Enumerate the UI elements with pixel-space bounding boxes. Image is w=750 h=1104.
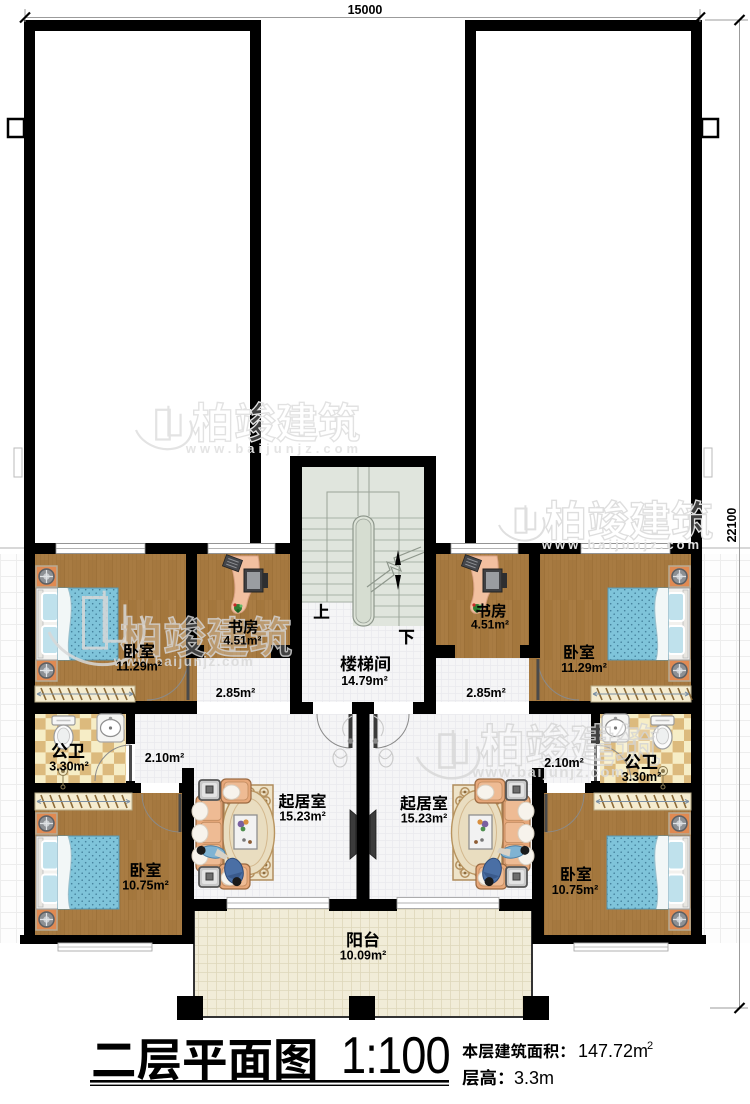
svg-text:2.10m²: 2.10m² bbox=[544, 756, 584, 770]
svg-text:15.23m²: 15.23m² bbox=[401, 812, 448, 826]
svg-text:3.30m²: 3.30m² bbox=[622, 770, 662, 784]
svg-text:11.29m²: 11.29m² bbox=[116, 660, 162, 674]
svg-text:www.baijunjz.com: www.baijunjz.com bbox=[541, 537, 702, 552]
svg-text:1:100: 1:100 bbox=[341, 1027, 450, 1085]
svg-text:4.51m²: 4.51m² bbox=[471, 618, 509, 632]
svg-text:www.baijunjz.com: www.baijunjz.com bbox=[185, 441, 362, 456]
svg-text:22100: 22100 bbox=[725, 508, 739, 543]
svg-text:14.79m²: 14.79m² bbox=[341, 674, 388, 688]
svg-text:2.10m²: 2.10m² bbox=[145, 751, 185, 765]
svg-text:11.29m²: 11.29m² bbox=[561, 661, 607, 675]
svg-text:10.09m²: 10.09m² bbox=[340, 949, 387, 963]
svg-text:3.3m: 3.3m bbox=[514, 1068, 554, 1088]
svg-text:2.85m²: 2.85m² bbox=[216, 686, 256, 700]
svg-text:2.85m²: 2.85m² bbox=[466, 686, 506, 700]
svg-text:10.75m²: 10.75m² bbox=[552, 883, 599, 897]
svg-text:2: 2 bbox=[647, 1040, 653, 1052]
svg-text:4.51m²: 4.51m² bbox=[223, 634, 261, 648]
svg-text:15.23m²: 15.23m² bbox=[279, 810, 326, 824]
svg-text:3.30m²: 3.30m² bbox=[49, 760, 89, 774]
svg-text:15000: 15000 bbox=[348, 3, 383, 17]
svg-text:10.75m²: 10.75m² bbox=[122, 879, 169, 893]
svg-text:147.72m: 147.72m bbox=[578, 1041, 648, 1061]
